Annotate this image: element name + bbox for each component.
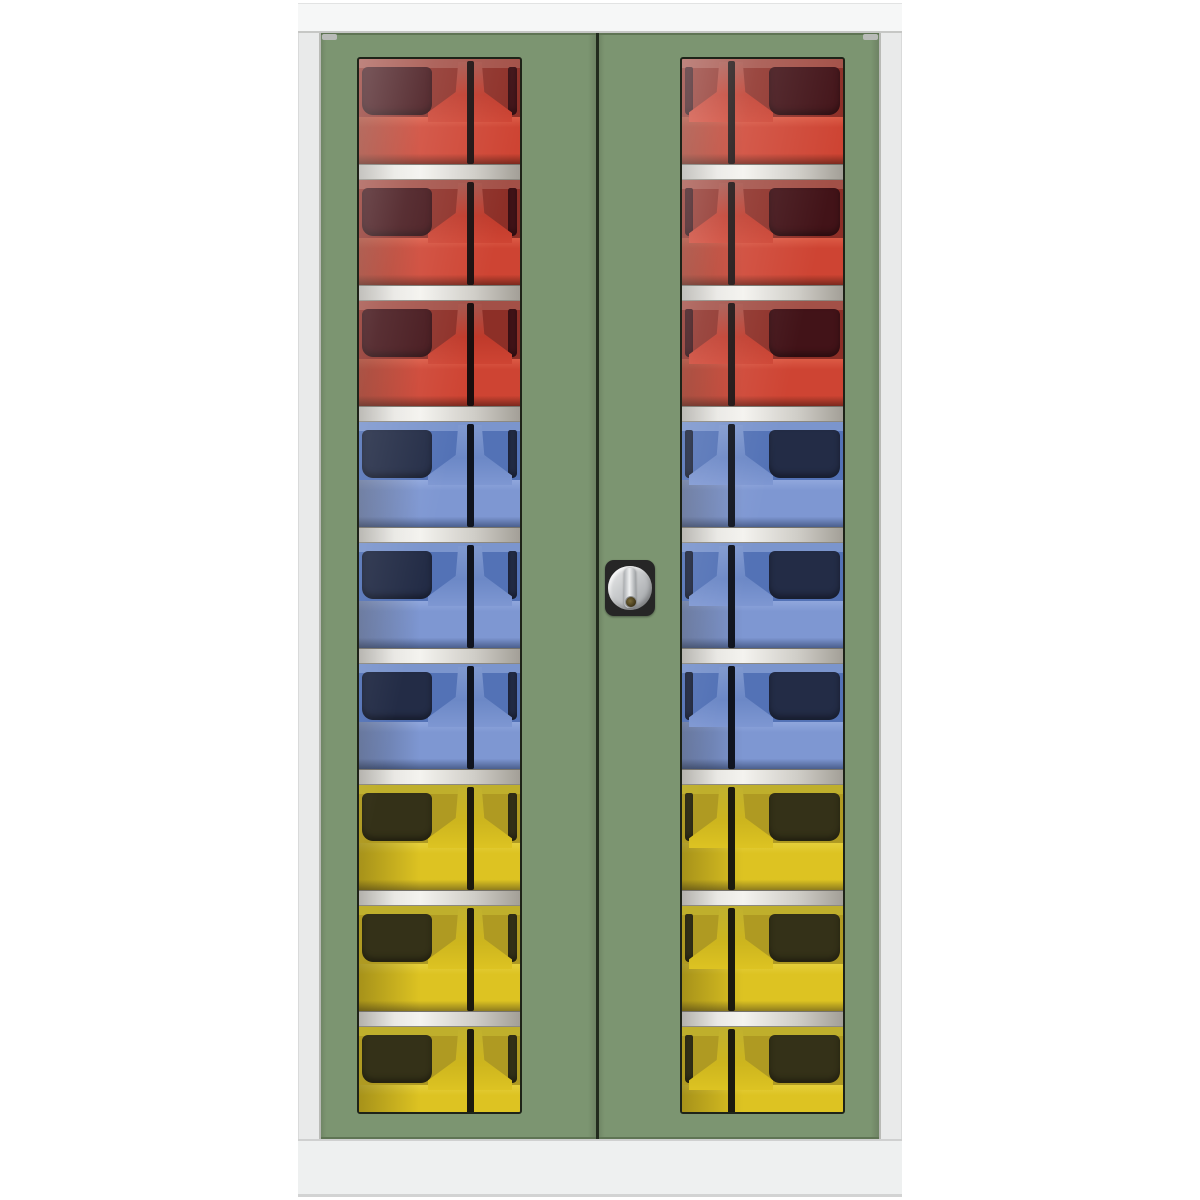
bin-opening: [362, 67, 432, 115]
bin-divider-gap: [728, 908, 735, 1011]
bin-row-red: [359, 59, 520, 164]
shelf: [682, 648, 843, 664]
bin-row-yellow: [682, 1027, 843, 1112]
bin-opening: [362, 793, 432, 841]
lock-knob: [608, 566, 652, 610]
bin-opening: [508, 551, 517, 599]
bin-row-blue: [682, 664, 843, 769]
storage-cupboard: [298, 3, 902, 1197]
bin-row-red: [359, 180, 520, 285]
bin-divider-gap: [467, 1029, 474, 1112]
shelf: [359, 527, 520, 543]
bin-opening: [685, 430, 693, 478]
product-photo: [0, 0, 1200, 1200]
bin-divider-gap: [728, 303, 735, 406]
shelf: [682, 769, 843, 785]
bin-opening: [685, 188, 693, 236]
bin-row-red: [359, 301, 520, 406]
bin-front-face: [682, 964, 843, 1011]
bin-front-face: [682, 843, 843, 890]
bin-opening: [508, 430, 517, 478]
bin-divider-gap: [728, 666, 735, 769]
shelf: [682, 406, 843, 422]
bin-opening: [769, 672, 840, 720]
bin-front-face: [359, 843, 520, 890]
keyhole-icon: [625, 596, 637, 608]
bin-divider-gap: [728, 787, 735, 890]
bin-opening: [362, 309, 432, 357]
bin-front-face: [359, 601, 520, 648]
bin-opening: [685, 672, 693, 720]
bin-front-face: [359, 480, 520, 527]
bin-opening: [508, 793, 517, 841]
door-window: [357, 57, 522, 1114]
bin-divider-gap: [467, 303, 474, 406]
bin-opening: [769, 67, 840, 115]
bin-opening: [769, 914, 840, 962]
window-contents: [359, 59, 520, 1112]
cabinet-top-panel: [298, 3, 902, 33]
bin-front-face: [682, 238, 843, 285]
cabinet-side-frame-left: [298, 33, 321, 1139]
bin-opening: [362, 1035, 432, 1083]
bin-opening: [508, 1035, 517, 1083]
bin-front-face: [682, 359, 843, 406]
shelf: [682, 164, 843, 180]
bin-opening: [769, 1035, 840, 1083]
bin-row-yellow: [682, 785, 843, 890]
bin-row-red: [682, 59, 843, 164]
bin-divider-gap: [728, 545, 735, 648]
bin-row-yellow: [682, 906, 843, 1011]
bin-opening: [685, 309, 693, 357]
bin-opening: [508, 672, 517, 720]
bin-opening: [362, 430, 432, 478]
bin-row-red: [682, 180, 843, 285]
bin-row-yellow: [359, 785, 520, 890]
bin-front-face: [359, 359, 520, 406]
window-contents: [682, 59, 843, 1112]
bin-divider-gap: [728, 424, 735, 527]
bin-opening: [362, 914, 432, 962]
bin-opening: [508, 309, 517, 357]
bin-opening: [685, 1035, 693, 1083]
bin-opening: [685, 551, 693, 599]
bin-divider-gap: [467, 787, 474, 890]
bin-divider-gap: [728, 61, 735, 164]
bin-opening: [769, 793, 840, 841]
bin-row-red: [682, 301, 843, 406]
shelf: [359, 769, 520, 785]
left-door: [321, 33, 596, 1139]
bin-opening: [769, 188, 840, 236]
bin-front-face: [682, 722, 843, 769]
bin-front-face: [359, 964, 520, 1011]
bin-divider-gap: [467, 666, 474, 769]
bin-opening: [769, 309, 840, 357]
bin-opening: [685, 67, 693, 115]
hinge-icon: [863, 34, 878, 40]
bin-row-blue: [359, 664, 520, 769]
bin-opening: [769, 430, 840, 478]
bin-front-face: [359, 117, 520, 164]
shelf: [359, 406, 520, 422]
shelf: [359, 890, 520, 906]
bin-divider-gap: [467, 424, 474, 527]
door-window: [680, 57, 845, 1114]
hinge-icon: [322, 34, 337, 40]
bin-opening: [508, 914, 517, 962]
bin-row-blue: [359, 543, 520, 648]
bin-row-yellow: [359, 906, 520, 1011]
bin-opening: [508, 67, 517, 115]
shelf: [359, 1011, 520, 1027]
bin-opening: [508, 188, 517, 236]
bin-opening: [362, 551, 432, 599]
bin-opening: [362, 188, 432, 236]
shelf: [682, 1011, 843, 1027]
bin-front-face: [682, 601, 843, 648]
bin-row-blue: [682, 543, 843, 648]
bin-front-face: [359, 238, 520, 285]
cabinet-side-frame-right: [879, 33, 902, 1139]
bin-front-face: [682, 117, 843, 164]
bin-divider-gap: [467, 545, 474, 648]
bin-opening: [362, 672, 432, 720]
shelf: [682, 890, 843, 906]
shelf: [359, 164, 520, 180]
bin-opening: [685, 914, 693, 962]
bin-row-blue: [682, 422, 843, 527]
bin-row-yellow: [359, 1027, 520, 1112]
door-gap: [596, 33, 599, 1139]
bin-opening: [685, 793, 693, 841]
bin-divider-gap: [728, 182, 735, 285]
bin-divider-gap: [467, 61, 474, 164]
cabinet-plinth: [298, 1139, 902, 1197]
bin-row-blue: [359, 422, 520, 527]
bin-opening: [769, 551, 840, 599]
shelf: [359, 648, 520, 664]
shelf: [682, 285, 843, 301]
bin-divider-gap: [467, 908, 474, 1011]
shelf: [359, 285, 520, 301]
shelf: [682, 527, 843, 543]
door-lock: [605, 560, 655, 616]
bin-front-face: [359, 722, 520, 769]
bin-front-face: [682, 480, 843, 527]
bin-divider-gap: [467, 182, 474, 285]
bin-divider-gap: [728, 1029, 735, 1112]
